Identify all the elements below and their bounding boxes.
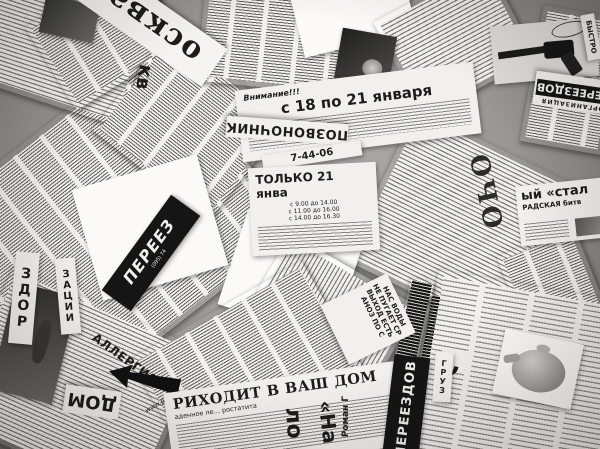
newsprint-text-texture	[524, 219, 570, 242]
revolver-barrel-icon	[498, 45, 550, 59]
revolver-grip-icon	[560, 51, 583, 77]
roman-label: Роман Г	[341, 396, 351, 437]
stalingrad-article: ый «стал РАДСКАЯ битв	[515, 178, 600, 247]
bystro-label: БЫСТРО	[584, 20, 598, 54]
only21-label: ТОЛЬКО 21 янва	[255, 167, 370, 201]
gruz-label: ГРУЗ	[437, 359, 448, 396]
newsprint-text-texture	[258, 221, 373, 251]
zacii-label: ЗАЦИИ	[60, 268, 76, 324]
only21-ad: ТОЛЬКО 21 янва с 9.00 до 14.00 с 11.00 д…	[248, 162, 380, 257]
gruz-strip: ГРУЗ	[432, 351, 453, 402]
kv-label: кв	[131, 63, 157, 91]
article-photo	[575, 216, 600, 237]
dom-label: ДОМ	[66, 388, 118, 416]
moving-right-label: ПЕРЕЕЗДОВ	[393, 359, 420, 449]
roman-byline: Роман Г	[336, 386, 356, 448]
newspaper-collage-photo: БЫСТРО ОРГАНИЗАЦИЯ ПЕРЕЕЗДОВ ПЕРЕ МА оск…	[0, 0, 600, 449]
zdor-label: ЗДОР	[13, 265, 35, 330]
phone-label: 7-44-06	[290, 147, 334, 165]
